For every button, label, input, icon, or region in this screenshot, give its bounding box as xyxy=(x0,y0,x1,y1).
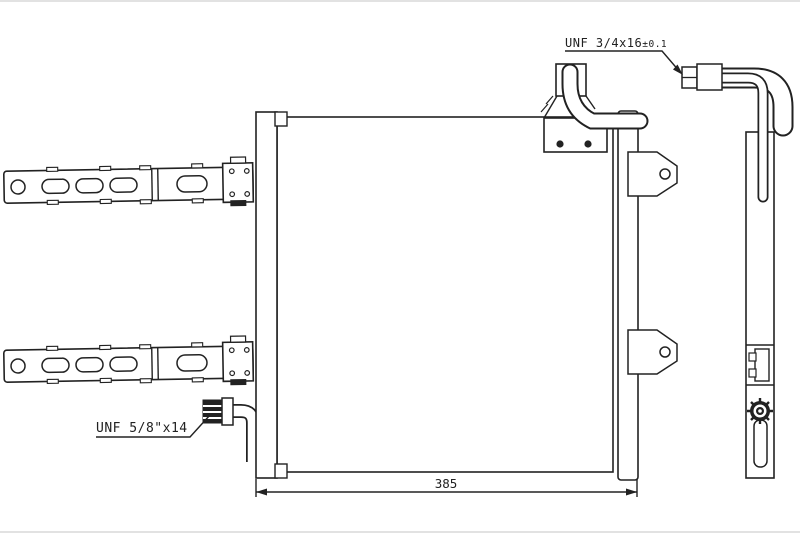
page-top-edge xyxy=(0,0,800,2)
receiver-drier xyxy=(682,64,783,478)
dim-arrow-left xyxy=(256,489,267,496)
bracket-plate xyxy=(223,163,254,203)
condenser-technical-drawing: POLOVNI AUTOMOBILI 385 362 xyxy=(0,0,800,533)
bracket-slot xyxy=(110,178,137,192)
top-fitting xyxy=(682,64,722,90)
top-fitting-spec: UNF 3/4x16 xyxy=(565,36,642,50)
outlet-pipe-bottom xyxy=(232,411,253,462)
bracket-slot xyxy=(110,357,137,371)
bracket-plate xyxy=(223,342,254,382)
bracket-slot xyxy=(76,357,103,371)
dimension-width-value: 385 xyxy=(435,476,458,491)
condenser-core xyxy=(277,117,613,472)
mounting-tab-upper xyxy=(628,152,677,196)
drier-slot xyxy=(754,420,767,467)
bracket-slot xyxy=(177,176,207,193)
bracket-slot xyxy=(42,358,69,372)
parts-catalog-drawing-page: POLOVNI AUTOMOBILI 385 362 xyxy=(0,0,800,533)
top-fitting-tolerance: ±0.1 xyxy=(642,39,667,50)
mounting-bracket-upper xyxy=(4,157,254,210)
bracket-hole xyxy=(11,359,25,373)
svg-text:UNF 3/4x16±0.1: UNF 3/4x16±0.1 xyxy=(565,36,667,50)
bottom-fitting-spec: UNF 5/8"x14 xyxy=(96,421,188,436)
bracket-slot xyxy=(177,355,207,372)
label-bottom-fitting: UNF 5/8"x14 xyxy=(96,415,210,437)
tab-hole xyxy=(660,347,670,357)
bolt xyxy=(556,140,563,147)
bracket-hole xyxy=(11,180,25,194)
bolt xyxy=(584,140,591,147)
bracket-slot xyxy=(42,179,69,193)
dim-arrow-right xyxy=(626,489,637,496)
tab-hole xyxy=(660,169,670,179)
tank-bottom-step xyxy=(275,464,287,478)
mounting-tab-lower xyxy=(628,330,677,374)
mounting-bracket-lower xyxy=(4,336,254,389)
bracket-slot xyxy=(76,178,103,192)
bottom-fitting xyxy=(203,398,233,425)
tank-top-step xyxy=(275,112,287,126)
